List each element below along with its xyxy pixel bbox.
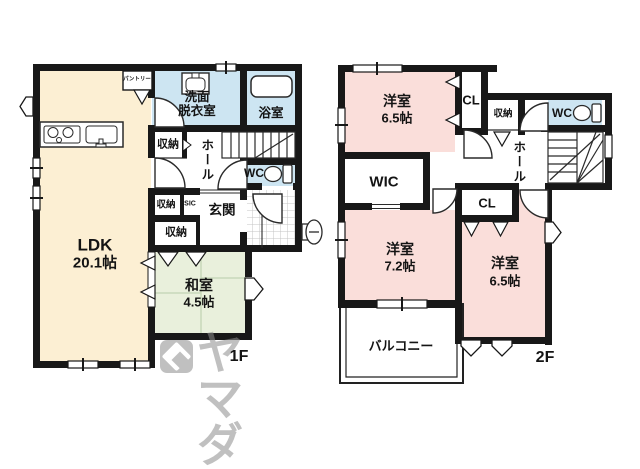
washroom-label-1: 洗面 (184, 91, 209, 104)
ldk-size: 20.1帖 (73, 256, 117, 271)
cl-a-label: CL (462, 94, 479, 107)
brand-logo-icon (160, 340, 193, 373)
bedroom-c-size: 6.5帖 (489, 275, 520, 288)
storage-a-label: 収納 (157, 140, 179, 151)
ldk-door (155, 158, 185, 188)
toilet-icon-2f (574, 104, 602, 122)
storage-2f-label: 収納 (493, 109, 512, 119)
pantry-label: パントリー (123, 77, 151, 83)
washitsu-name: 和室 (185, 278, 213, 292)
genkan-label: 玄関 (209, 203, 236, 217)
window-pentagon-washitsu (245, 278, 263, 300)
bedroom-b-name: 洋室 (386, 242, 414, 256)
cl-b-label: CL (478, 197, 495, 210)
floor-plan-drawing (0, 0, 640, 469)
washroom-label-2: 脱衣室 (178, 105, 216, 118)
storage-c-label: 収納 (165, 228, 187, 239)
bedroom-b-door (433, 189, 457, 213)
ldk-room (37, 68, 151, 364)
floor-1-label: 1F (230, 349, 249, 365)
kitchen-counter (40, 122, 123, 147)
window-pentagon-bottom-2 (492, 340, 512, 356)
wic-opening (372, 205, 400, 209)
balcony-label: バルコニー (369, 340, 434, 353)
storage-b-label: 収納 (156, 200, 175, 210)
bathtub-icon (251, 76, 292, 97)
window-pentagon-bedroom-c (545, 222, 561, 243)
stairs-2f (548, 132, 603, 183)
floor-plan-image: LDK 20.1帖 洗面 脱衣室 浴室 収納 ホール WC 収納 SIC 玄関 … (0, 0, 640, 469)
storage-2f-door (494, 132, 510, 146)
wic-label: WIC (369, 175, 398, 190)
ldk-name: LDK (78, 237, 113, 254)
washitsu-size: 4.5帖 (183, 296, 214, 309)
toilet-icon-1f (265, 165, 293, 183)
window-pentagon-left (20, 97, 33, 116)
bedroom-b-size: 7.2帖 (384, 260, 415, 273)
hall-label-2f: ホール (512, 140, 525, 184)
floor-2-label: 2F (536, 350, 555, 366)
sic-label: SIC (184, 201, 196, 208)
hall-label-1f: ホール (200, 138, 213, 182)
porch-exterior-fixture (302, 220, 322, 244)
bath-label: 浴室 (258, 107, 283, 120)
bedroom-a-size: 6.5帖 (381, 112, 412, 125)
wc-label-1f: WC (244, 167, 264, 179)
stairs-1f (222, 132, 295, 158)
wc-label-2f: WC (552, 107, 572, 119)
bedroom-a-name: 洋室 (383, 94, 411, 108)
wc-door-1f (218, 160, 247, 189)
bedroom-c-name: 洋室 (491, 256, 519, 270)
